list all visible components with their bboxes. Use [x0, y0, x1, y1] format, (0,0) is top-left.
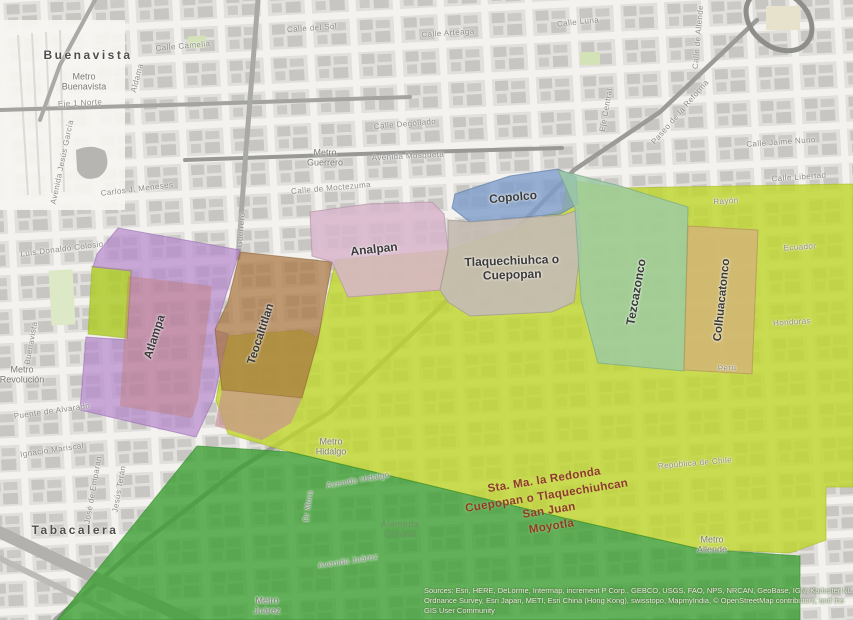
basemap-svg: [0, 0, 853, 620]
region-polygon-atlampa-inner: [120, 276, 212, 418]
median-green: [49, 269, 76, 325]
park-patch: [188, 35, 207, 48]
region-polygon-colhuacatonco[interactable]: [684, 226, 758, 374]
map-canvas[interactable]: Buenavista Tabacalera Atlampa Teocaltitl…: [0, 0, 853, 620]
park-patch: [766, 6, 800, 30]
park-patch: [580, 52, 600, 65]
region-polygon-tlaquechiuhca[interactable]: [440, 210, 581, 316]
